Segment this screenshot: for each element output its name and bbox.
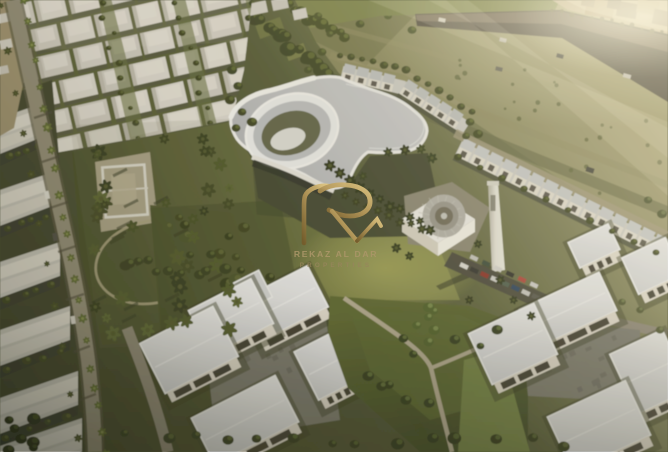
svg-text:PROPERTIES: PROPERTIES: [300, 262, 373, 269]
svg-text:REKAZ AL DAR: REKAZ AL DAR: [294, 249, 378, 259]
